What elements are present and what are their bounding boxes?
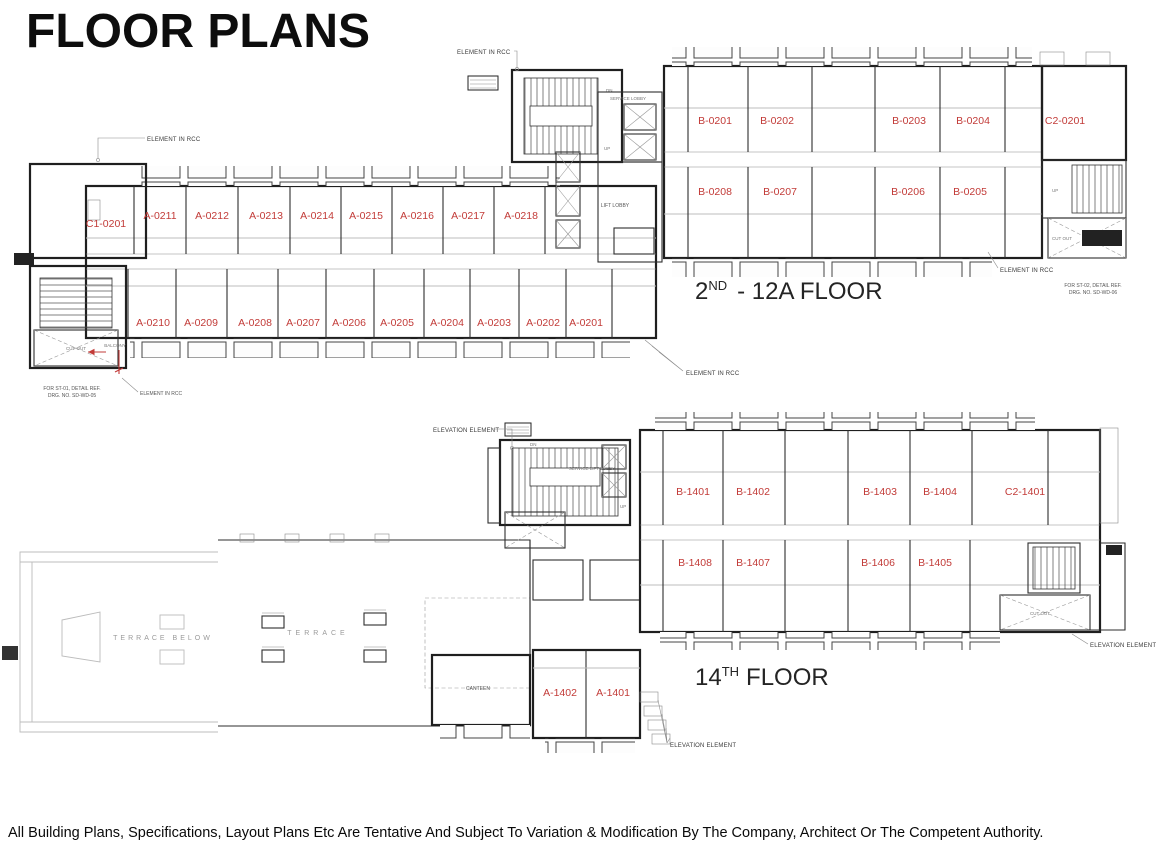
terrace-below-area [2,552,218,732]
unit-label: A-1402 [543,687,577,699]
unit-label: A-0213 [249,210,283,222]
unit-label: B-0202 [760,115,794,127]
svg-text:ELEVATION ELEMENT: ELEVATION ELEMENT [433,428,499,434]
upper-floor-plan: CUT OUT BALCONY DN UP [14,47,1126,399]
unit-label: A-0218 [504,210,538,222]
upper-right-partitions [688,66,1005,258]
annotation-element-in-rcc: ELEMENT IN RCC [457,50,519,71]
unit-label: B-1403 [863,486,897,498]
unit-label: C1-0201 [86,218,126,230]
legend-box [468,76,498,90]
balcony-strip [655,412,1035,430]
cutout-label: CUT OUT [1030,611,1050,616]
floor-plans-sheet: FLOOR PLANS [0,0,1160,856]
cutout-label: CUT OUT [66,346,86,351]
unit-label: A-0212 [195,210,229,222]
balcony-arrow-marker: BALCONY [88,343,126,374]
lift-lobby-label: LIFT LOBBY [601,203,630,209]
upper-floor-caption: 2ND- 12A FLOOR [695,278,883,306]
unit-label: B-0201 [698,115,732,127]
unit-c1-block [30,164,146,258]
unit-label: A-0203 [477,317,511,329]
up-label: UP [620,504,626,509]
svg-text:ELEMENT IN RCC: ELEMENT IN RCC [1000,268,1054,274]
annotation-elevation-element: ELEVATION ELEMENT [1072,634,1156,649]
annotation-st01-note: FOR ST-01, DETAIL REF. DRG. NO. SD-WD-05 [43,386,100,399]
lower-core-tower: DN UP SERVICE LIFT LOBBY [488,423,640,655]
svg-text:FOR ST-01, DETAIL REF.: FOR ST-01, DETAIL REF. [43,386,100,392]
legend-box [14,253,34,265]
svg-text:ELEVATION ELEMENT: ELEVATION ELEMENT [1090,643,1156,649]
unit-label: B-0206 [891,186,925,198]
lower-floor-plan: TERRACE BELOW TERRACE CANTEEN [2,412,1156,753]
legend-box [505,423,531,436]
upper-left-wing: CUT OUT BALCONY [14,164,656,374]
cutout-label: CUT OUT [1052,236,1072,241]
unit-label: A-1401 [596,687,630,699]
unit-label: A-0208 [238,317,272,329]
upper-right-wing: UP CUT OUT [664,47,1126,277]
terrace-label: TERRACE [287,630,348,637]
svg-text:ELEVATION ELEMENT: ELEVATION ELEMENT [670,743,736,749]
balcony-strip [672,258,992,277]
canteen-block: CANTEEN [432,655,530,740]
balcony-strip [130,338,630,358]
unit-label: A-0215 [349,210,383,222]
unit-label: C2-0201 [1045,115,1085,127]
unit-label: B-0207 [763,186,797,198]
svg-text:ELEMENT IN RCC: ELEMENT IN RCC [140,391,183,397]
unit-label: A-0204 [430,317,464,329]
annotation-element-in-rcc: ELEMENT IN RCC [96,137,200,162]
lower-floor-caption: 14THFLOOR [695,664,829,692]
balcony-strip [672,47,1032,66]
caption-text: - 12A FLOOR [737,278,882,305]
svg-text:ELEMENT IN RCC: ELEMENT IN RCC [457,50,511,56]
disclaimer-text: All Building Plans, Specifications, Layo… [8,825,1043,841]
unit-label: A-0207 [286,317,320,329]
unit-label: B-0204 [956,115,990,127]
balcony-label: BALCONY [104,343,126,348]
canteen-label: CANTEEN [466,686,490,692]
annotation-element-in-rcc: ELEMENT IN RCC [988,252,1054,274]
svg-text:DRG. NO. SD-WD-06: DRG. NO. SD-WD-06 [1069,290,1118,296]
a-units-block [533,650,670,753]
unit-label: B-0208 [698,186,732,198]
unit-label: B-0205 [953,186,987,198]
legend-box [1106,545,1122,555]
up-label: UP [1052,188,1058,193]
unit-label: A-0216 [400,210,434,222]
lift-shaft [624,134,656,160]
caption-number: 2 [695,278,708,305]
lower-right-end: CUT OUT [1000,428,1125,630]
unit-label: A-0209 [184,317,218,329]
legend-box [1082,230,1122,246]
caption-number: 14 [695,664,722,691]
unit-label: A-0206 [332,317,366,329]
unit-label: B-1401 [676,486,710,498]
unit-label: C2-1401 [1005,486,1045,498]
terrace-area: TERRACE BELOW TERRACE [113,534,530,726]
lift-shaft [624,104,656,130]
caption-suffix: TH [722,664,739,679]
svg-text:ELEMENT IN RCC: ELEMENT IN RCC [686,371,740,377]
unit-label: B-0203 [892,115,926,127]
unit-label: B-1406 [861,557,895,569]
caption-suffix: ND [708,278,727,293]
svg-text:ELEMENT IN RCC: ELEMENT IN RCC [147,137,201,143]
terrace-below-label: TERRACE BELOW [113,635,213,642]
annotation-elevation-element: ELEVATION ELEMENT [433,428,514,450]
annotation-element-in-rcc: ELEMENT IN RCC [122,378,183,397]
unit-label: A-0214 [300,210,334,222]
annotation-st02-note: FOR ST-02, DETAIL REF. DRG. NO. SD-WD-06 [1064,283,1121,296]
svg-text:FOR ST-02, DETAIL REF.: FOR ST-02, DETAIL REF. [1064,283,1121,289]
unit-label: A-0210 [136,317,170,329]
svg-text:DRG. NO. SD-WD-05: DRG. NO. SD-WD-05 [48,393,97,399]
up-label: UP [604,146,610,151]
balcony-strip [140,166,560,186]
unit-label: B-1407 [736,557,770,569]
upper-right-end: UP CUT OUT [1040,52,1126,258]
caption-text: FLOOR [746,664,829,691]
unit-label: A-0202 [526,317,560,329]
unit-label: A-0205 [380,317,414,329]
balcony-strip [440,725,530,740]
unit-label: A-0217 [451,210,485,222]
lower-right-partitions [663,430,1048,632]
unit-label: A-0201 [569,317,603,329]
legend-box [2,646,18,660]
unit-label: B-1408 [678,557,712,569]
annotation-element-in-rcc: ELEMENT IN RCC [645,340,740,377]
unit-label: B-1405 [918,557,952,569]
dn-label: DN [530,442,537,447]
balcony-strip [660,632,1000,650]
unit-label: B-1404 [923,486,957,498]
service-lobby-label: SERVICE LOBBY [610,96,646,101]
balcony-strip [545,738,635,753]
unit-label: B-1402 [736,486,770,498]
upper-left-staircase: CUT OUT [30,266,126,368]
floor-plan-canvas: CUT OUT BALCONY DN UP [0,0,1160,856]
lower-right-wing: CUT OUT [640,412,1125,650]
unit-label: A-0211 [143,210,176,222]
